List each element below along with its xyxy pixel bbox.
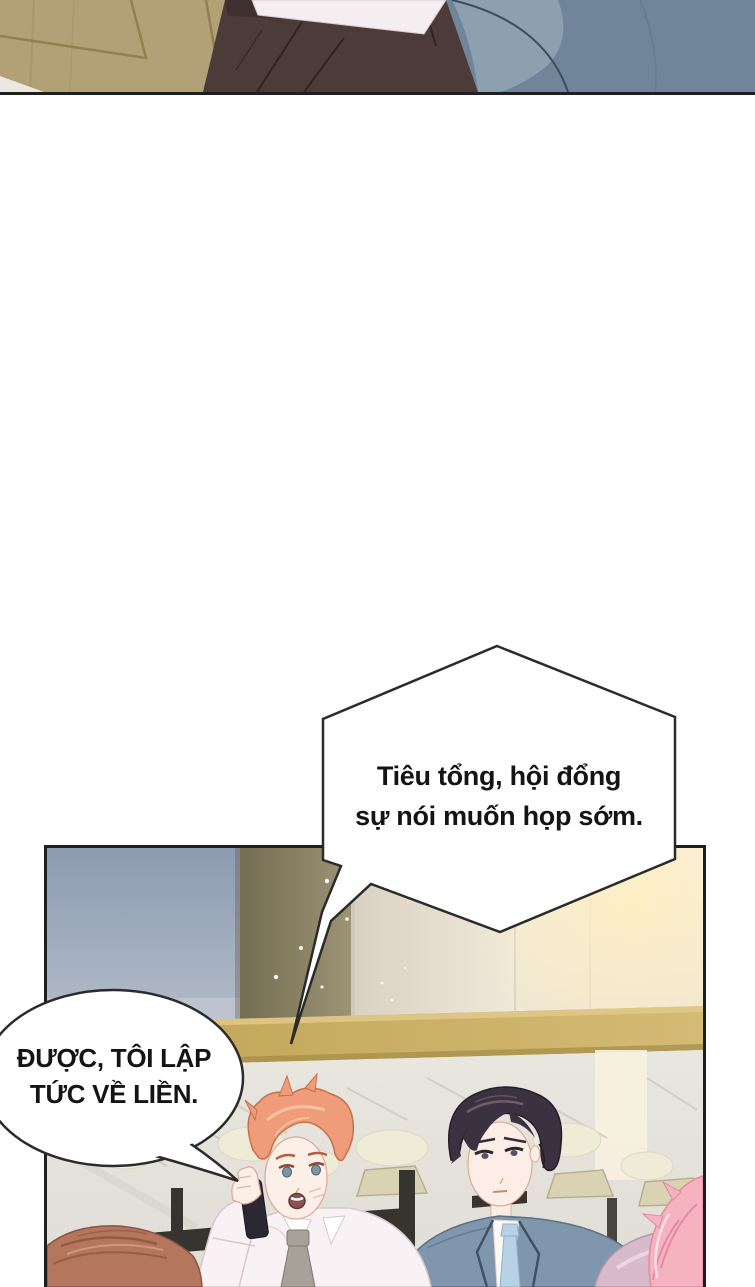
hexagon-bubble-line2: sự nói muốn họp sớm. — [310, 796, 688, 836]
panel-top-art — [0, 0, 755, 92]
comic-page: Tiêu tổng, hội đổng sự nói muốn họp sớm.… — [0, 0, 755, 1287]
hexagon-bubble-text: Tiêu tổng, hội đổng sự nói muốn họp sớm. — [310, 756, 688, 836]
blue-tie — [500, 1224, 520, 1287]
oval-bubble-line2: TỨC VỀ LIỀN. — [0, 1076, 252, 1112]
oval-bubble-text: ĐƯỢC, TÔI LẬP TỨC VỀ LIỀN. — [0, 1040, 252, 1112]
oval-bubble-line1: ĐƯỢC, TÔI LẬP — [0, 1040, 252, 1076]
window-blue — [47, 848, 240, 1024]
panel-top — [0, 0, 755, 95]
open-mouth — [289, 1194, 305, 1209]
hexagon-bubble-line1: Tiêu tổng, hội đổng — [310, 756, 688, 796]
olive-wall — [240, 848, 355, 1024]
blue-suit-shoulder — [446, 0, 755, 92]
ear — [530, 1146, 540, 1162]
